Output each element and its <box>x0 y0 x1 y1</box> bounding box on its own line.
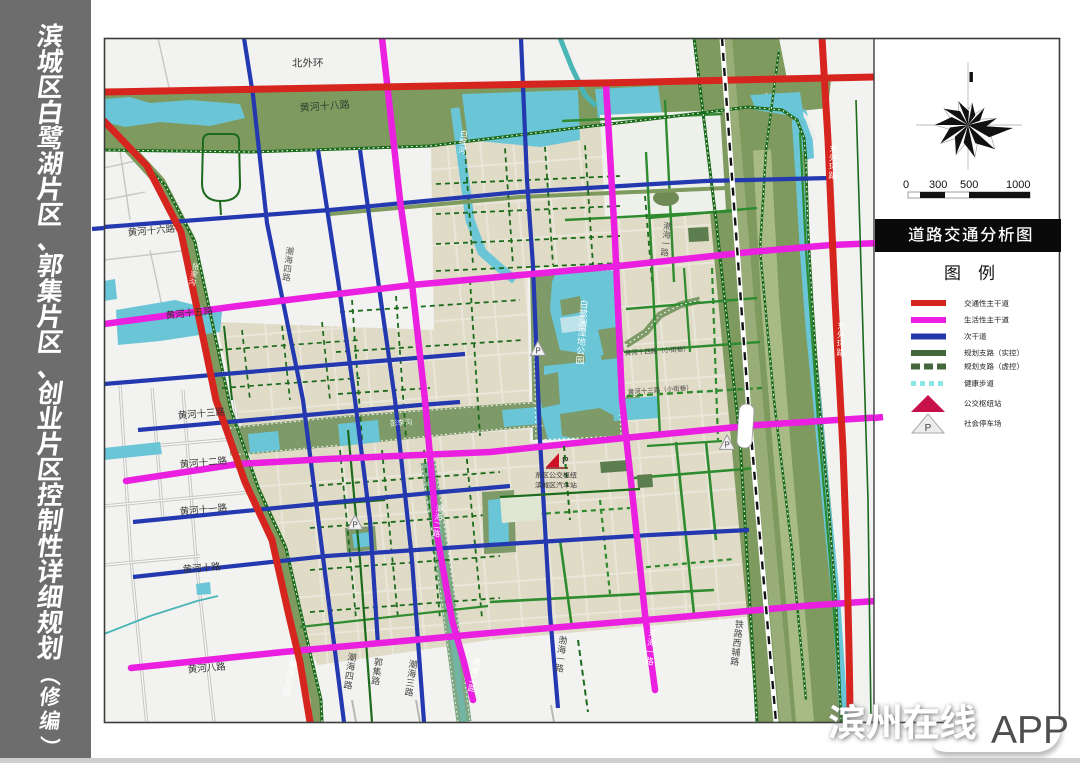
svg-text:P: P <box>724 440 729 449</box>
svg-text:APP: APP <box>991 709 1069 752</box>
svg-text:P: P <box>535 346 540 355</box>
svg-text:300: 300 <box>929 179 947 191</box>
svg-text:500: 500 <box>960 179 978 191</box>
svg-text:0: 0 <box>903 179 909 191</box>
svg-text:P: P <box>925 423 932 434</box>
svg-text:1000: 1000 <box>1006 179 1030 191</box>
svg-text:P: P <box>352 520 357 529</box>
